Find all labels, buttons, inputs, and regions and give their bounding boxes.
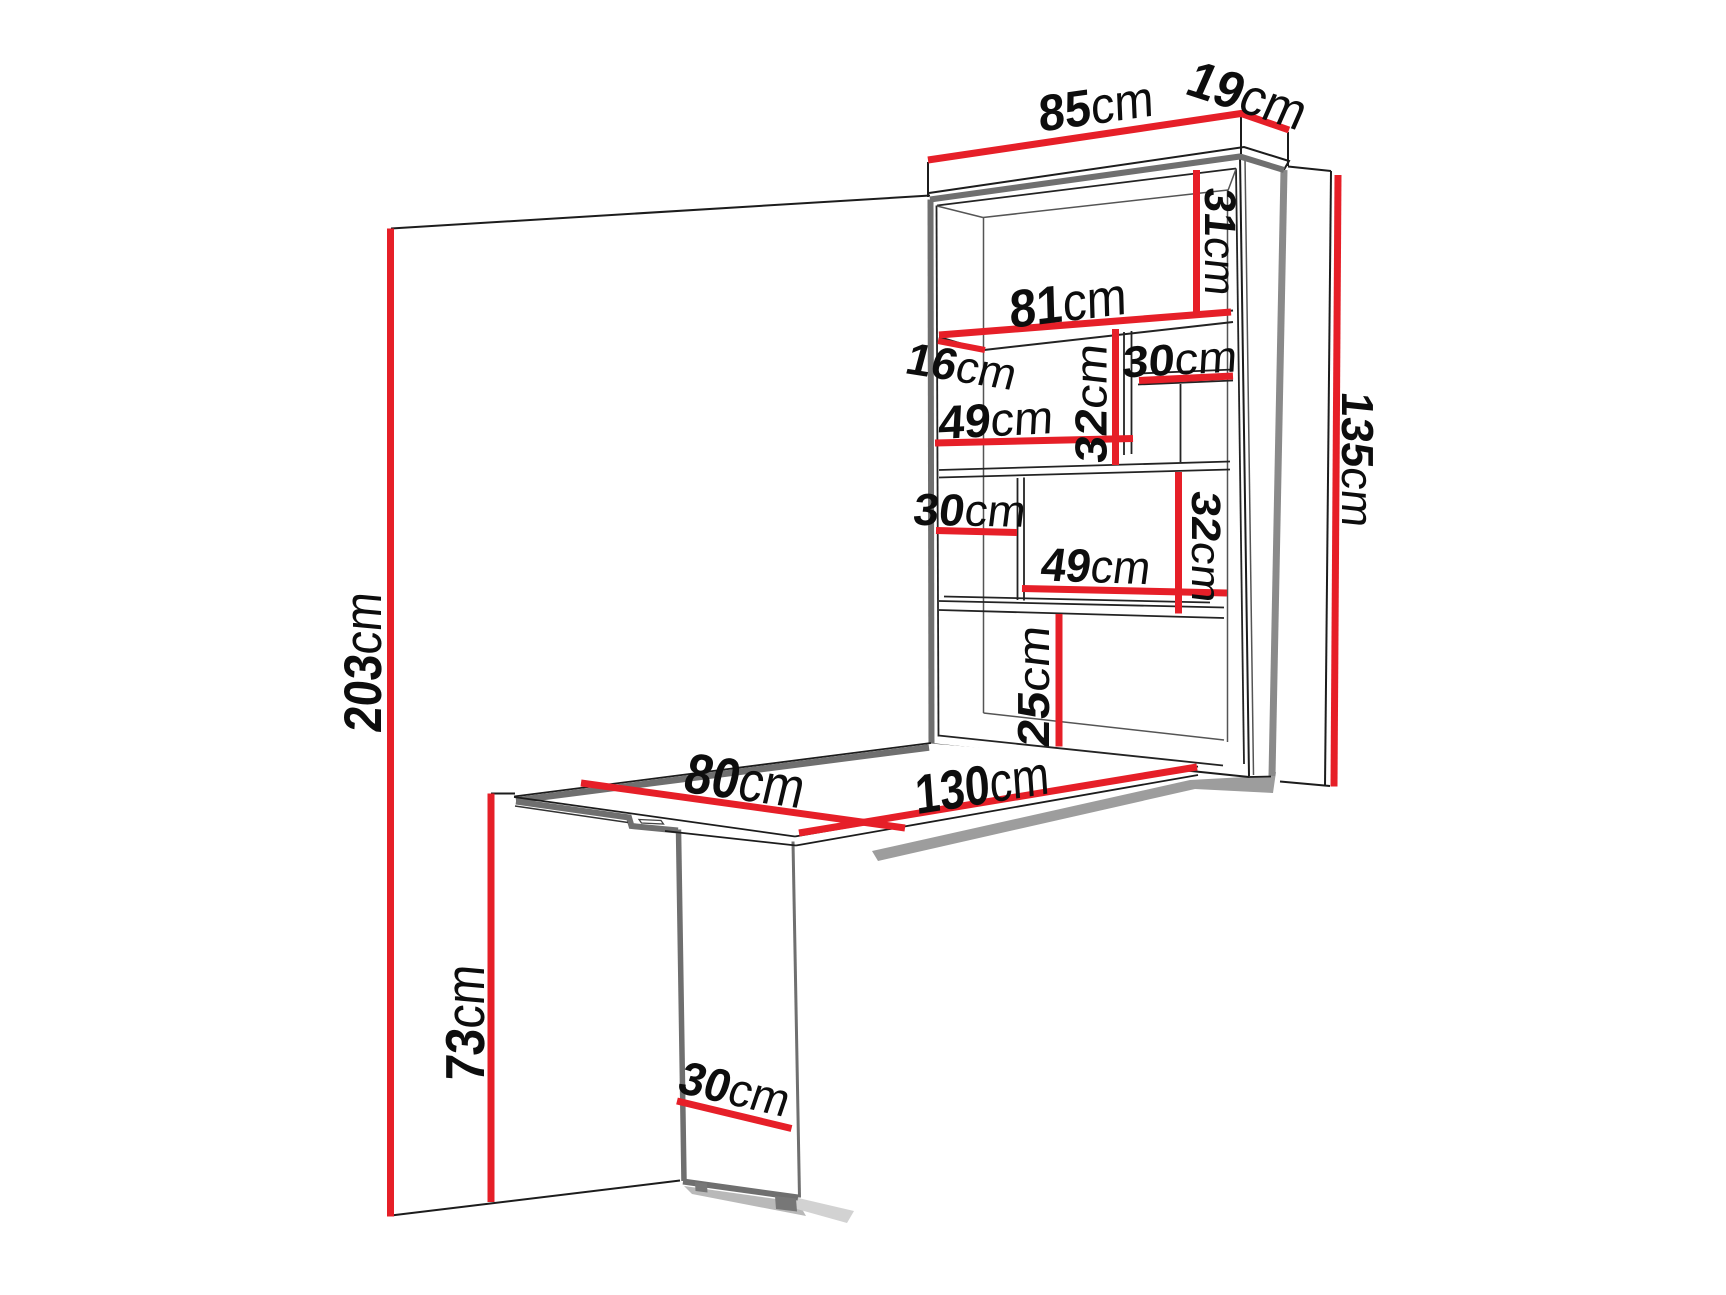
svg-text:30cm: 30cm: [1121, 331, 1239, 386]
svg-text:32cm: 32cm: [1182, 489, 1227, 606]
svg-text:30cm: 30cm: [911, 484, 1030, 536]
svg-text:49cm: 49cm: [937, 389, 1055, 448]
svg-text:135cm: 135cm: [1333, 390, 1384, 530]
svg-text:49cm: 49cm: [1038, 538, 1154, 595]
svg-text:32cm: 32cm: [1065, 341, 1116, 466]
svg-text:25cm: 25cm: [1009, 623, 1059, 750]
svg-text:73cm: 73cm: [434, 962, 496, 1085]
svg-text:31cm: 31cm: [1196, 186, 1245, 299]
svg-text:203cm: 203cm: [333, 589, 392, 734]
